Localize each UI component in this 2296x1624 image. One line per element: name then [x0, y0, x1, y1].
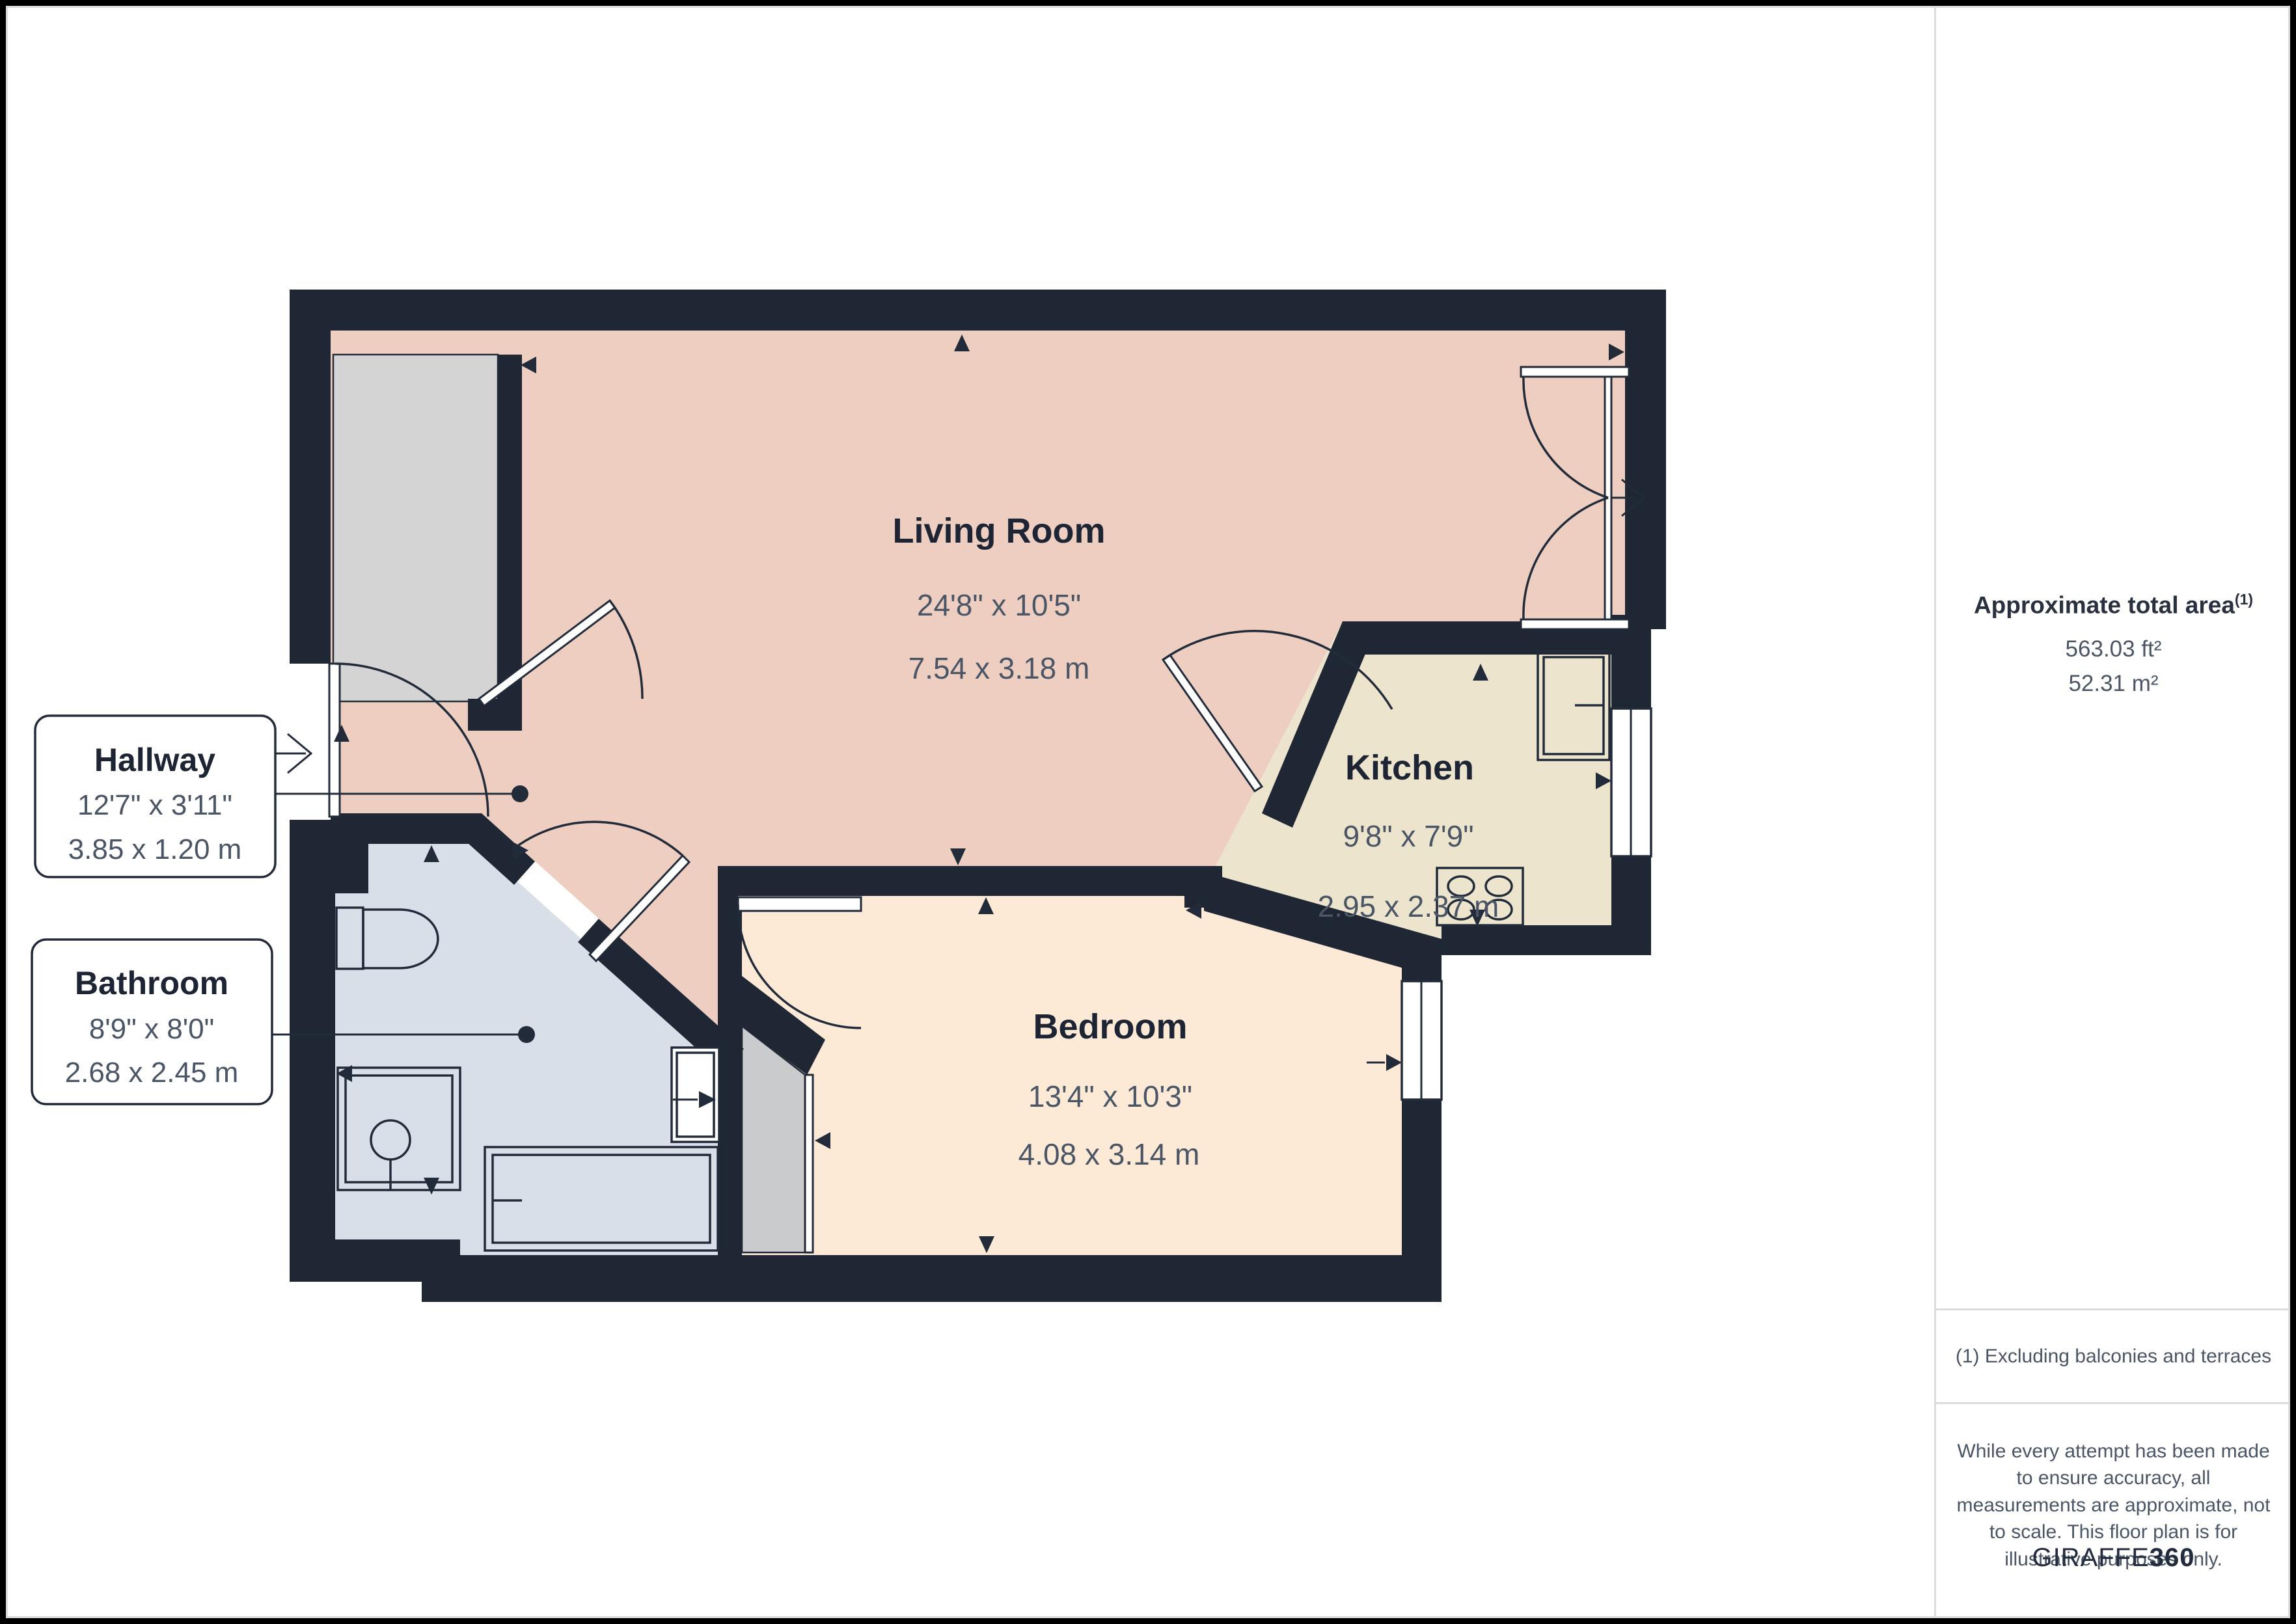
footnote: (1) Excluding balconies and terraces — [1936, 1346, 2291, 1368]
total-area-heading-text: Approximate total area — [1974, 591, 2235, 618]
callout-dims-imperial: 12'7" x 3'11" — [77, 789, 232, 821]
room-title: Kitchen — [1345, 748, 1474, 787]
giraffe360-logo-suffix: 360 — [2150, 1543, 2195, 1572]
total-area-heading: Approximate total area(1) — [1936, 591, 2291, 619]
callout-dims-imperial: 8'9" x 8'0" — [89, 1013, 214, 1045]
callout-hallway: Hallway 12'7" x 3'11" 3.85 x 1.20 m — [35, 716, 275, 877]
room-dims-metric: 2.95 x 2.37 m — [1318, 889, 1499, 923]
bedroom-window — [1402, 981, 1442, 1100]
closet-door — [805, 1075, 813, 1252]
sidebar-rule — [1936, 1308, 2291, 1310]
room-title: Bedroom — [1033, 1007, 1187, 1046]
sidebar-divider — [1934, 6, 1936, 1618]
total-area-heading-sup: (1) — [2235, 591, 2253, 608]
room-label-living: Living Room 24'8" x 10'5" 7.54 x 3.18 m — [893, 511, 1106, 685]
floor-plan: Living Room 24'8" x 10'5" 7.54 x 3.18 m … — [0, 0, 1936, 1624]
room-dims-imperial: 13'4" x 10'3" — [1028, 1079, 1192, 1113]
callout-dims-metric: 3.85 x 1.20 m — [68, 833, 242, 865]
callout-title: Hallway — [94, 742, 215, 778]
room-label-bedroom: Bedroom 13'4" x 10'3" 4.08 x 3.14 m — [1018, 1007, 1200, 1171]
balcony-storage-area — [333, 355, 498, 701]
room-dims-metric: 4.08 x 3.14 m — [1018, 1137, 1200, 1171]
room-dims-imperial: 9'8" x 7'9" — [1343, 819, 1473, 853]
room-label-kitchen: Kitchen 9'8" x 7'9" 2.95 x 2.37 m — [1318, 748, 1499, 923]
callout-bathroom: Bathroom 8'9" x 8'0" 2.68 x 2.45 m — [32, 940, 272, 1104]
callout-dims-metric: 2.68 x 2.45 m — [65, 1057, 239, 1089]
kitchen-window — [1611, 709, 1651, 856]
giraffe360-logo: GIRAFFE360 — [1936, 1543, 2291, 1573]
room-title: Living Room — [893, 511, 1106, 550]
callout-title: Bathroom — [75, 965, 228, 1001]
total-area-ft: 563.03 ft² — [1936, 636, 2291, 662]
room-dims-imperial: 24'8" x 10'5" — [917, 588, 1081, 622]
giraffe360-logo-name: GIRAFFE — [2032, 1543, 2149, 1572]
total-area-m: 52.31 m² — [1936, 671, 2291, 697]
room-dims-metric: 7.54 x 3.18 m — [909, 651, 1090, 685]
sidebar-rule — [1936, 1402, 2291, 1404]
room-fills — [331, 331, 1651, 1302]
sink-icon — [672, 1048, 719, 1142]
